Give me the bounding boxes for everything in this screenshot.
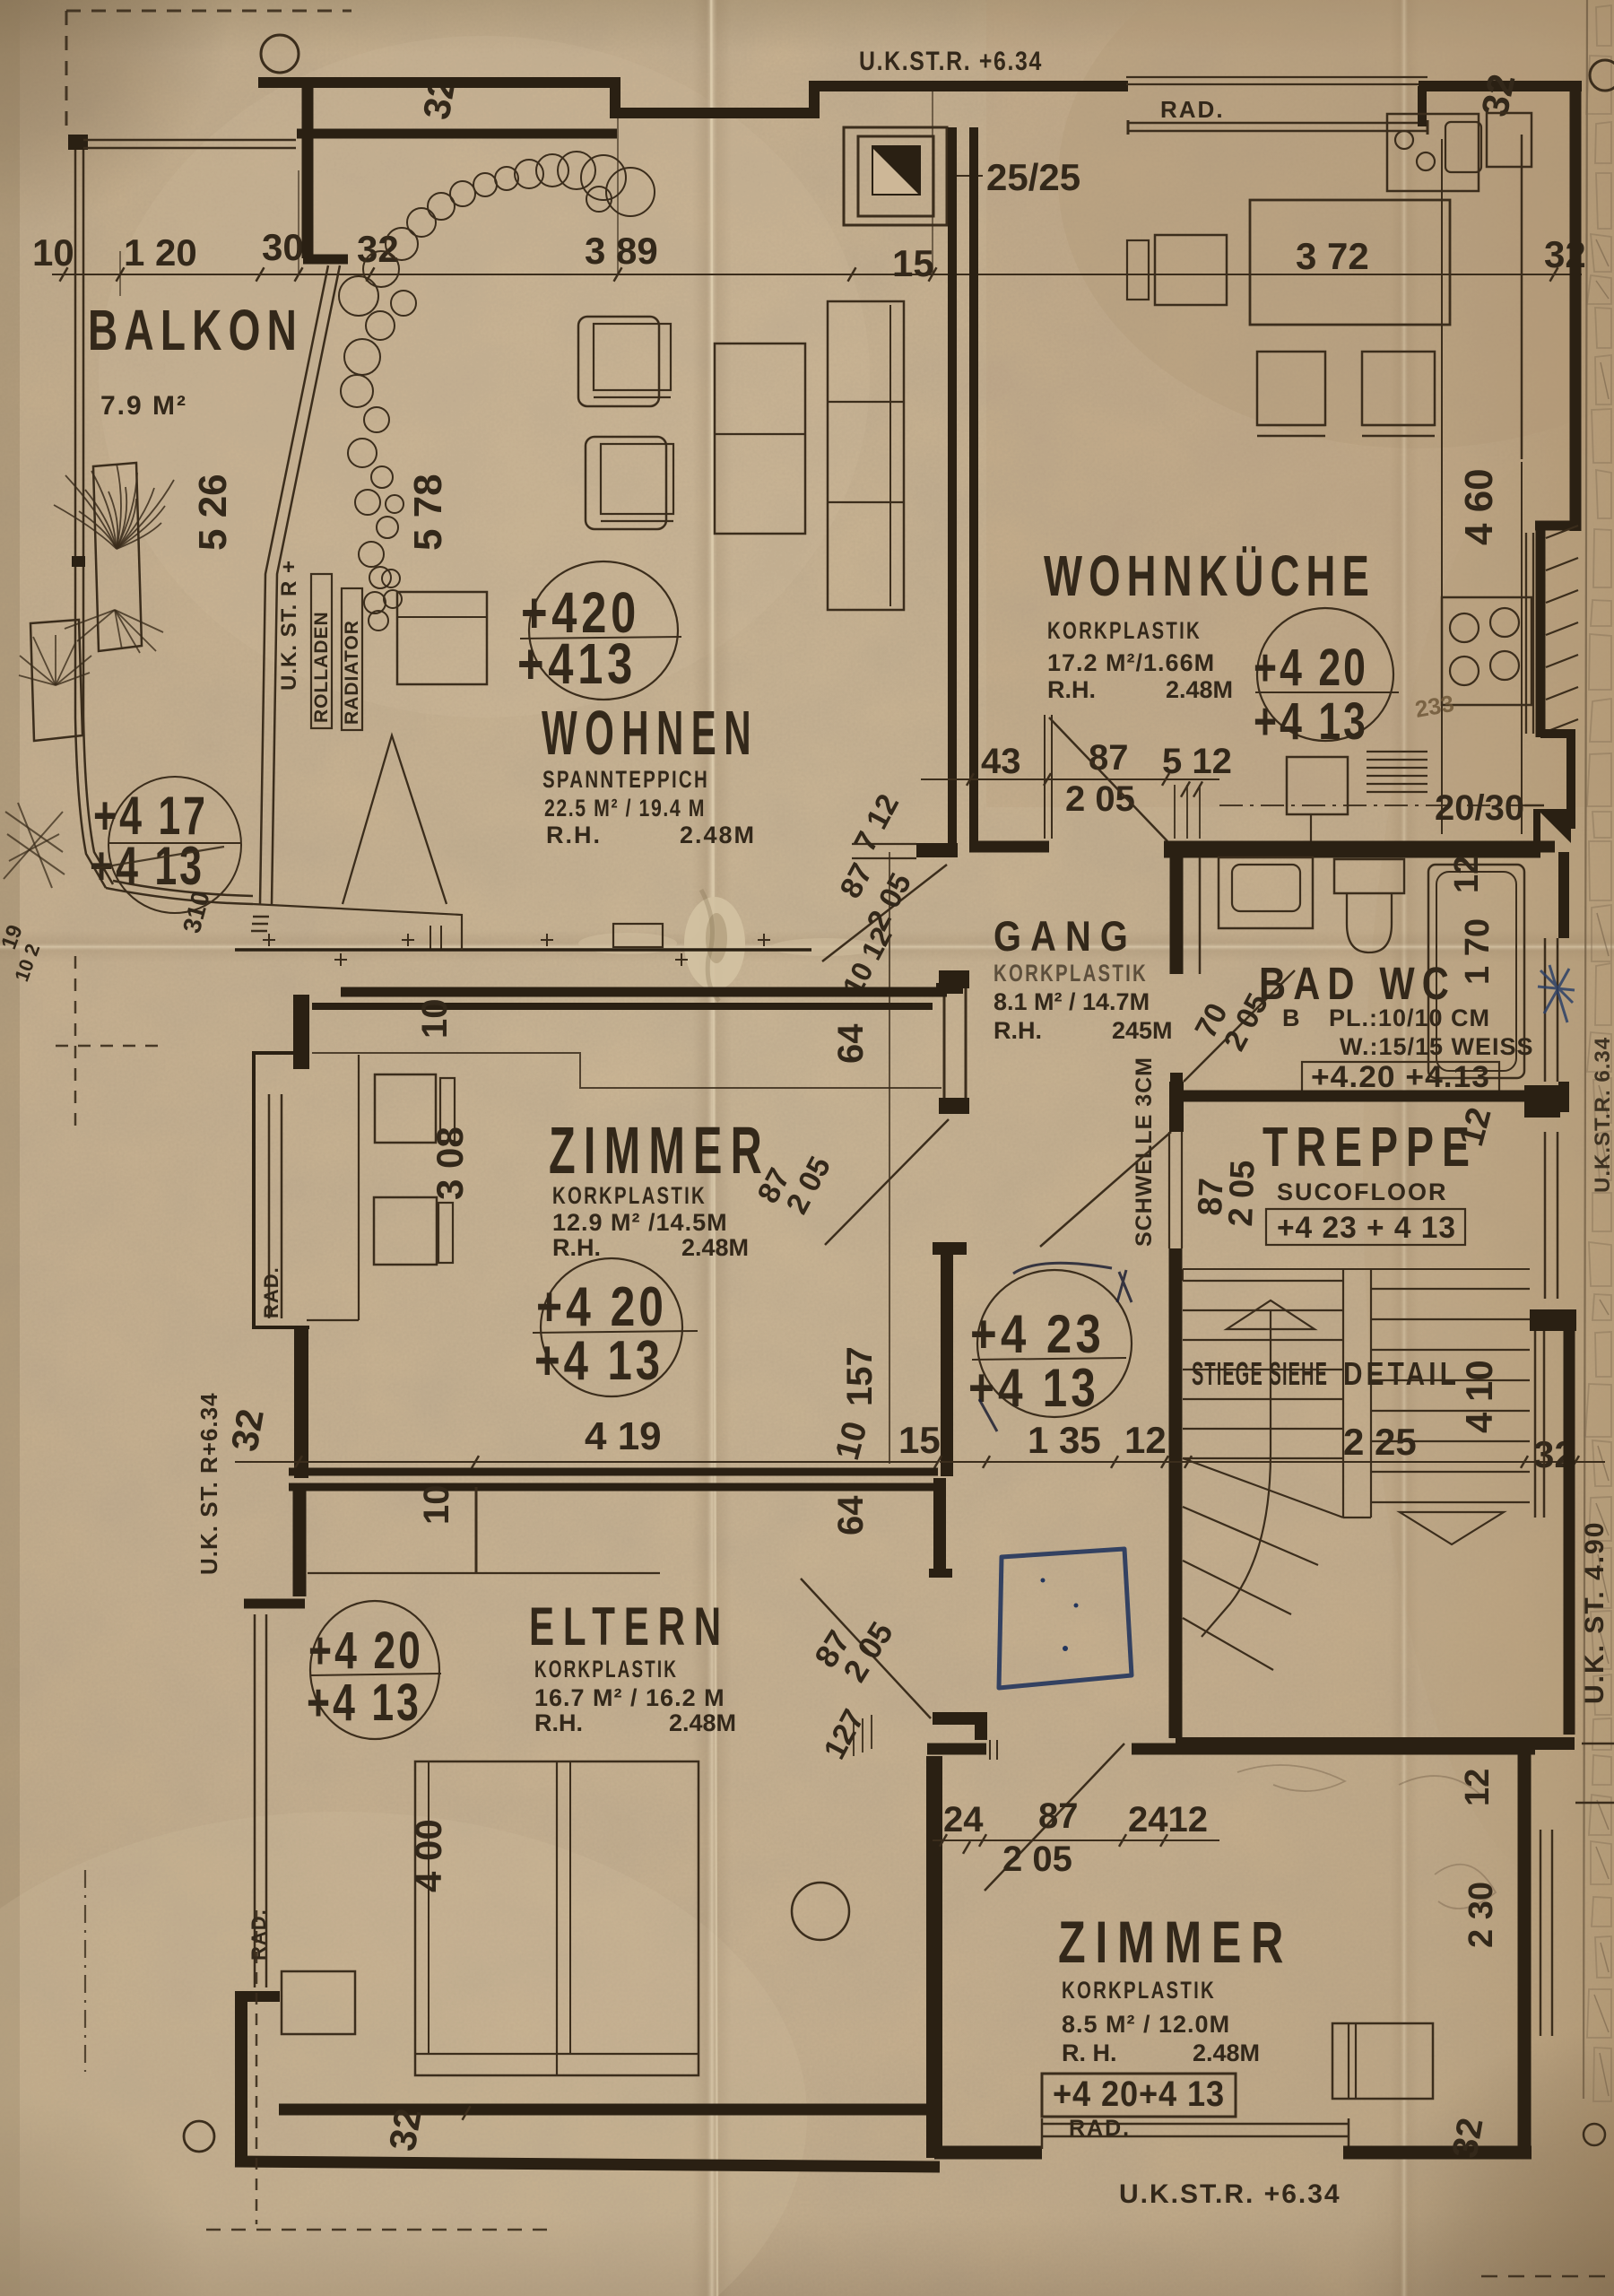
svg-text:KORKPLASTIK: KORKPLASTIK: [552, 1182, 707, 1209]
svg-text:U.K.ST.R. +6.34: U.K.ST.R. +6.34: [859, 47, 1043, 76]
svg-text:1 35: 1 35: [1028, 1419, 1101, 1461]
svg-text:2.48M: 2.48M: [1166, 676, 1233, 703]
svg-text:7.9 M²: 7.9 M²: [100, 391, 187, 421]
svg-text:1 70: 1 70: [1459, 918, 1497, 985]
svg-text:2 30: 2 30: [1462, 1882, 1500, 1948]
svg-text:R. H.: R. H.: [1062, 2039, 1117, 2066]
svg-text:20/30: 20/30: [1435, 788, 1524, 828]
svg-text:16.7 M² / 16.2 M: 16.7 M² / 16.2 M: [534, 1684, 725, 1711]
svg-text:+4 23: +4 23: [970, 1304, 1105, 1364]
svg-text:RADIATOR: RADIATOR: [342, 620, 362, 725]
svg-text:3 89: 3 89: [585, 230, 658, 272]
svg-text:KORKPLASTIK: KORKPLASTIK: [994, 960, 1148, 987]
svg-text:GANG: GANG: [994, 912, 1137, 960]
svg-text:+4 20: +4 20: [308, 1622, 423, 1680]
svg-text:U.K. ST. R+6.34: U.K. ST. R+6.34: [195, 1392, 222, 1575]
svg-text:2.48M: 2.48M: [681, 1234, 749, 1261]
svg-text:+4 20+4 13: +4 20+4 13: [1053, 2074, 1225, 2114]
svg-text:+413: +413: [517, 631, 637, 696]
svg-text:WOHNEN: WOHNEN: [542, 698, 759, 768]
svg-text:U.K.ST.R. 6.34: U.K.ST.R. 6.34: [1591, 1037, 1614, 1193]
svg-text:3 72: 3 72: [1296, 235, 1369, 277]
svg-text:B: B: [1282, 1004, 1300, 1031]
svg-text:5 78: 5 78: [406, 474, 450, 551]
svg-text:+4 20: +4 20: [536, 1276, 667, 1338]
svg-text:5 12: 5 12: [1162, 742, 1232, 781]
svg-text:R.H.: R.H.: [994, 1017, 1042, 1044]
svg-text:+4 13: +4 13: [534, 1330, 664, 1392]
svg-text:12: 12: [1448, 856, 1486, 893]
svg-text:ROLLADEN: ROLLADEN: [311, 611, 332, 723]
svg-text:17.2 M²/1.66M: 17.2 M²/1.66M: [1047, 649, 1215, 676]
svg-text:157: 157: [840, 1346, 880, 1406]
svg-text:RAD.: RAD.: [260, 1266, 282, 1318]
svg-text:32: 32: [223, 1405, 272, 1454]
svg-text:2 25: 2 25: [1343, 1421, 1417, 1463]
svg-text:ELTERN: ELTERN: [529, 1596, 730, 1657]
svg-text:87: 87: [1089, 738, 1129, 778]
svg-text:TREPPE: TREPPE: [1263, 1117, 1478, 1178]
svg-text:STIEGE SIEHE: STIEGE SIEHE: [1192, 1355, 1328, 1392]
svg-text:R.H.: R.H.: [552, 1234, 601, 1261]
svg-text:4 19: 4 19: [585, 1414, 662, 1458]
svg-text:1 20: 1 20: [124, 231, 197, 274]
svg-text:4 00: 4 00: [407, 1819, 449, 1892]
svg-text:10: 10: [415, 999, 455, 1039]
svg-text:12: 12: [1124, 1419, 1167, 1461]
svg-text:5 26: 5 26: [191, 474, 235, 551]
svg-text:24: 24: [943, 1800, 984, 1839]
svg-text:RAD.: RAD.: [1069, 2116, 1131, 2141]
svg-text:12.9 M² /14.5M: 12.9 M² /14.5M: [552, 1209, 728, 1236]
svg-text:2.48M: 2.48M: [669, 1709, 736, 1736]
svg-text:15: 15: [898, 1419, 941, 1461]
svg-text:RAD.: RAD.: [247, 1909, 270, 1961]
svg-text:2 05: 2 05: [1002, 1839, 1072, 1879]
svg-text:87: 87: [1038, 1796, 1079, 1836]
svg-text:10: 10: [32, 231, 74, 274]
svg-text:KORKPLASTIK: KORKPLASTIK: [534, 1656, 678, 1683]
svg-text:30: 30: [262, 226, 304, 268]
svg-text:WOHNKÜCHE: WOHNKÜCHE: [1044, 544, 1375, 608]
svg-text:U.K.ST.R. +6.34: U.K.ST.R. +6.34: [1119, 2179, 1341, 2209]
svg-text:2.48M: 2.48M: [1193, 2039, 1260, 2066]
svg-text:SUCOFLOOR: SUCOFLOOR: [1277, 1178, 1448, 1205]
svg-text:10: 10: [417, 1485, 456, 1526]
svg-text:BAD WC: BAD WC: [1259, 958, 1456, 1009]
svg-text:32: 32: [1445, 2115, 1491, 2161]
svg-text:4 10: 4 10: [1458, 1360, 1500, 1433]
svg-text:+4 13: +4 13: [307, 1674, 421, 1732]
svg-text:W.:15/15 WEISS: W.:15/15 WEISS: [1340, 1033, 1534, 1060]
svg-text:SPANNTEPPICH: SPANNTEPPICH: [542, 766, 709, 793]
svg-text:2412: 2412: [1128, 1800, 1208, 1839]
svg-text:PL.:10/10 CM: PL.:10/10 CM: [1329, 1004, 1490, 1031]
svg-text:2 05: 2 05: [1222, 1160, 1263, 1227]
svg-text:64: 64: [831, 1023, 871, 1064]
svg-text:R.H.: R.H.: [1047, 676, 1096, 703]
svg-text:RAD.: RAD.: [1160, 96, 1225, 123]
svg-text:+4.20 +4.13: +4.20 +4.13: [1311, 1060, 1490, 1094]
svg-text:+4 13: +4 13: [968, 1358, 1099, 1418]
svg-text:43: 43: [981, 742, 1021, 781]
svg-text:R.H.: R.H.: [534, 1709, 583, 1736]
svg-text:ZIMMER: ZIMMER: [1058, 1909, 1293, 1975]
svg-text:245M: 245M: [1112, 1017, 1173, 1044]
svg-text:8.5 M² / 12.0M: 8.5 M² / 12.0M: [1062, 2011, 1230, 2038]
svg-text:+4 20: +4 20: [1254, 639, 1368, 697]
svg-text:64: 64: [831, 1495, 871, 1535]
svg-text:KORKPLASTIK: KORKPLASTIK: [1047, 617, 1202, 644]
svg-text:ZIMMER: ZIMMER: [549, 1113, 770, 1187]
svg-text:3 08: 3 08: [429, 1126, 471, 1200]
svg-text:U.K. ST. R +: U.K. ST. R +: [277, 560, 301, 691]
svg-text:U.K. ST. 4.90: U.K. ST. 4.90: [1580, 1521, 1610, 1704]
svg-text:SCHWELLE 3CM: SCHWELLE 3CM: [1132, 1057, 1157, 1247]
svg-text:4 60: 4 60: [1457, 468, 1501, 545]
svg-text:12: 12: [1459, 1769, 1497, 1806]
svg-text:8.1 M² / 14.7M: 8.1 M² / 14.7M: [994, 988, 1150, 1015]
svg-text:BALKON: BALKON: [88, 298, 303, 362]
svg-text:R.H.: R.H.: [546, 822, 602, 848]
svg-text:DETAIL: DETAIL: [1343, 1355, 1460, 1392]
svg-text:+4 13: +4 13: [1254, 692, 1368, 751]
svg-text:25/25: 25/25: [986, 156, 1080, 198]
svg-text:22.5 M² / 19.4 M: 22.5 M² / 19.4 M: [544, 795, 706, 822]
svg-text:2.48M: 2.48M: [680, 822, 756, 848]
svg-text:15: 15: [892, 242, 934, 284]
svg-text:+4 23 + 4 13: +4 23 + 4 13: [1277, 1211, 1456, 1245]
svg-text:32: 32: [381, 2105, 430, 2153]
svg-text:2 05: 2 05: [1065, 779, 1135, 819]
svg-text:KORKPLASTIK: KORKPLASTIK: [1062, 1977, 1216, 2004]
